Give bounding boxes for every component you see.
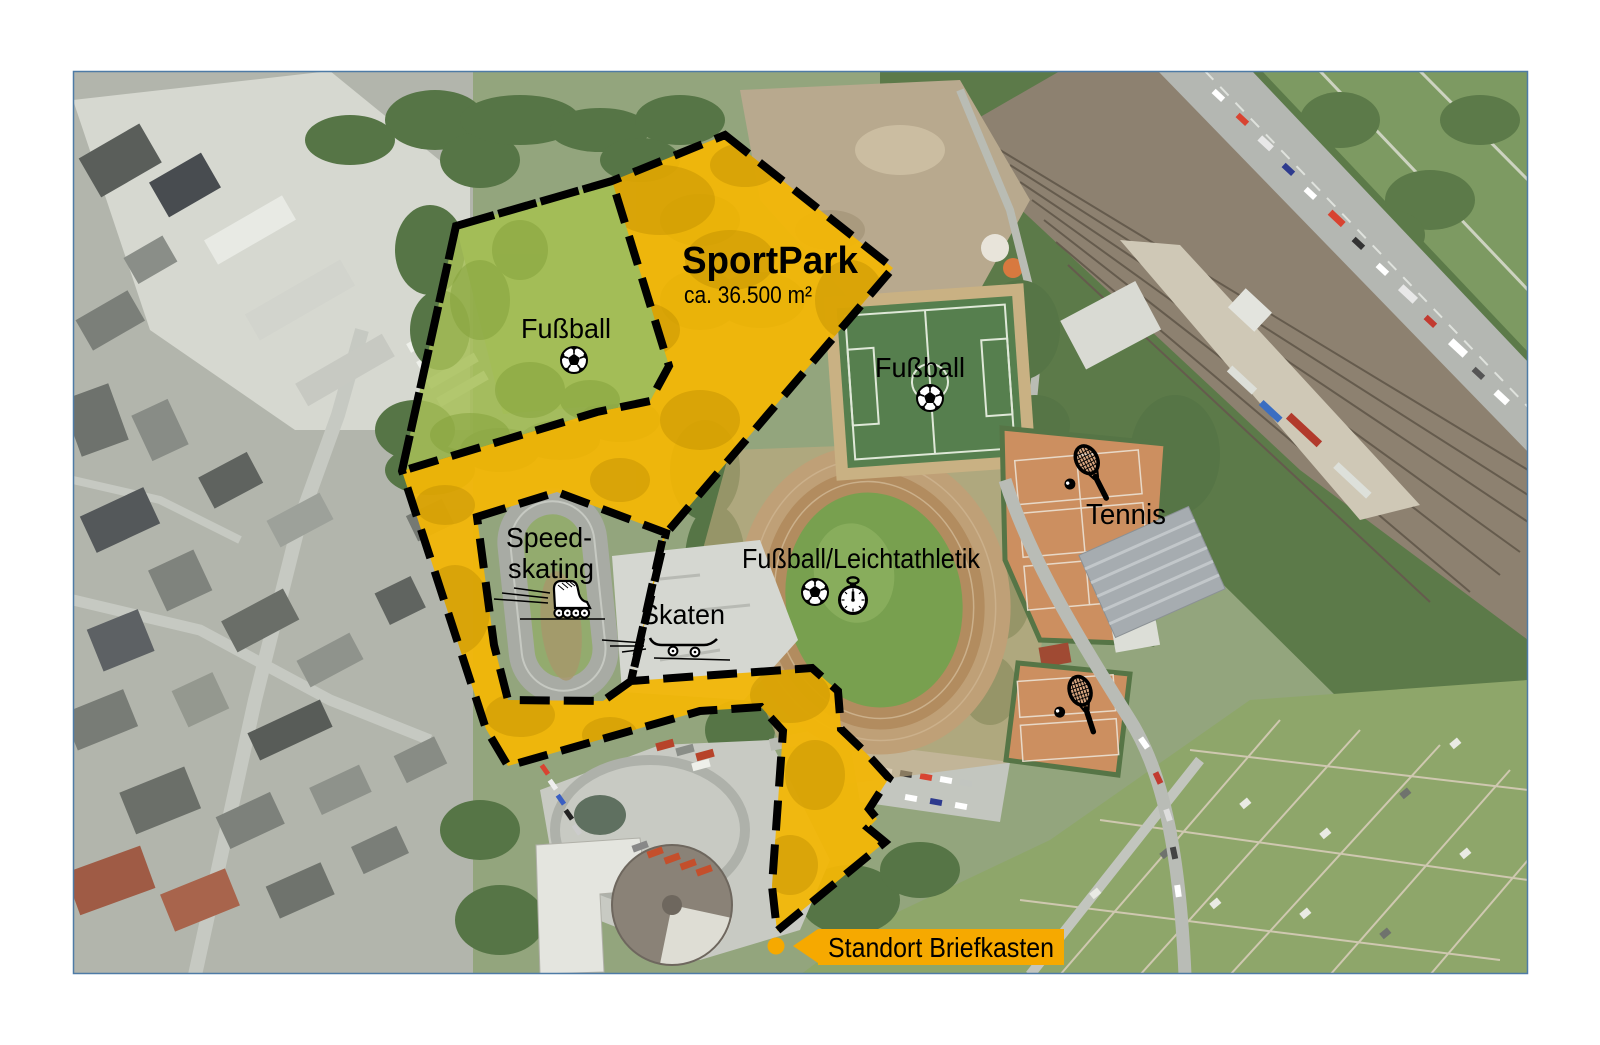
label-speedskating-line2: skating — [508, 553, 594, 584]
label-fussball-leichtathletik: Fußball/Leichtathletik — [742, 543, 981, 574]
aerial-photo: SportPark ca. 36.500 m² Fußball Fußball … — [61, 71, 1528, 975]
label-fussball-west: Fußball — [521, 313, 611, 344]
aerial-map: SportPark ca. 36.500 m² Fußball Fußball … — [0, 0, 1600, 1045]
label-tennis: Tennis — [1086, 499, 1166, 531]
sportpark-map: SportPark ca. 36.500 m² Fußball Fußball … — [0, 0, 1600, 1045]
label-fussball-east: Fußball — [875, 352, 965, 383]
sportpark-area-label: ca. 36.500 m² — [684, 282, 812, 309]
callout-text: Standort Briefkasten — [828, 932, 1054, 963]
label-skaten: Skaten — [641, 599, 725, 630]
marker-dot — [768, 938, 785, 955]
sportpark-title: SportPark — [682, 240, 859, 282]
label-speedskating-line1: Speed- — [506, 522, 592, 553]
